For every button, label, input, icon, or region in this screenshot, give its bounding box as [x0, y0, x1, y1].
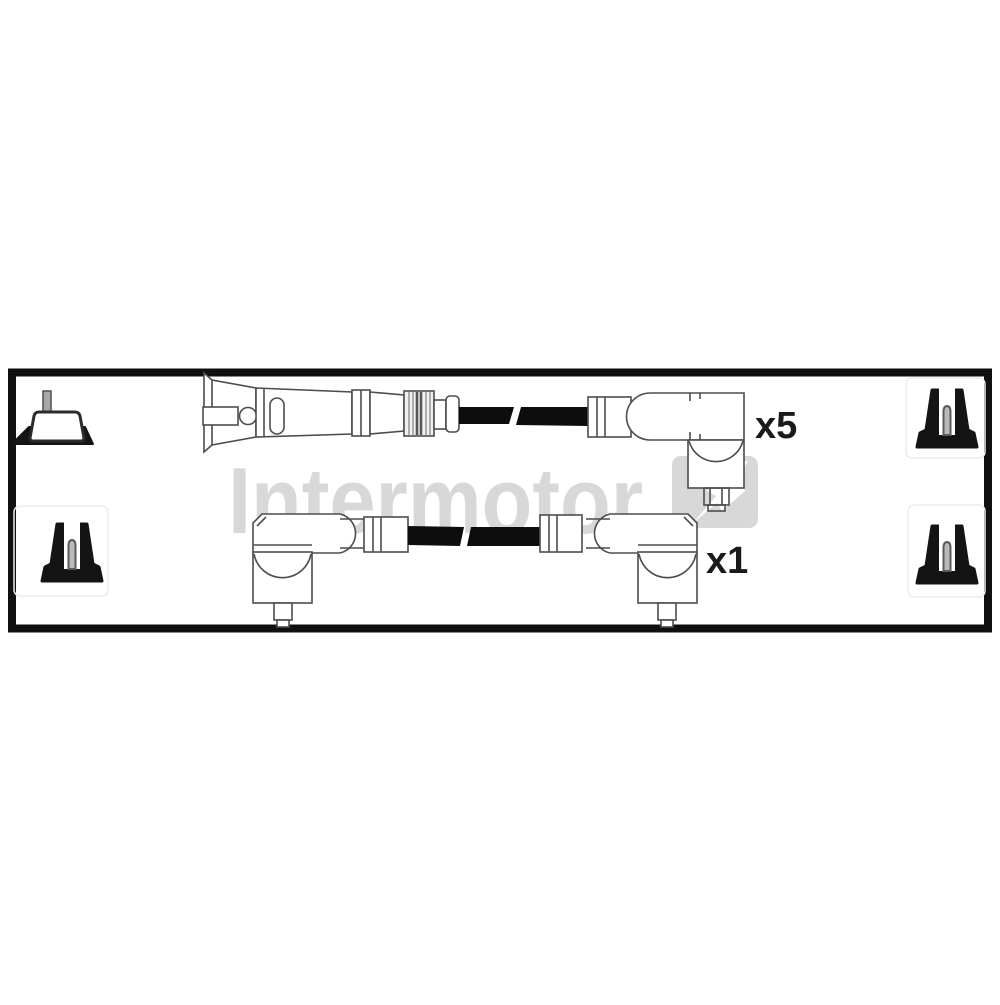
cable-sleeve	[364, 517, 408, 552]
cable-sleeve	[540, 515, 582, 552]
fork-slot	[203, 407, 238, 425]
boot-nipple-tip	[277, 620, 289, 627]
cap-flange	[446, 396, 459, 432]
boot-nipple-tip	[661, 620, 673, 627]
fork-hole	[240, 408, 257, 425]
cap-neck	[434, 400, 446, 429]
cable-segment	[408, 526, 464, 546]
product-diagram: Intermotor	[0, 0, 1000, 1000]
cable-segment	[467, 527, 540, 546]
top-right-boot-capsule	[627, 393, 745, 440]
cable-segment	[516, 407, 588, 426]
boot-nipple	[274, 603, 292, 620]
bottom-left-boot-capsule	[253, 514, 356, 553]
top-right-boot-block	[688, 440, 744, 488]
boot-nipple	[658, 603, 676, 620]
terminal-body	[30, 412, 84, 441]
top-lead-qty-label: x5	[755, 405, 797, 447]
cable-segment	[459, 407, 514, 424]
cable-sleeve	[588, 397, 631, 437]
bottom-right-boot-capsule	[594, 514, 697, 553]
bottom-lead-qty-label: x1	[706, 540, 748, 582]
boot-taper-2	[370, 392, 404, 434]
boot-slot	[270, 398, 284, 434]
ignition-lead-kit-drawing: Intermotor	[0, 0, 1000, 1000]
